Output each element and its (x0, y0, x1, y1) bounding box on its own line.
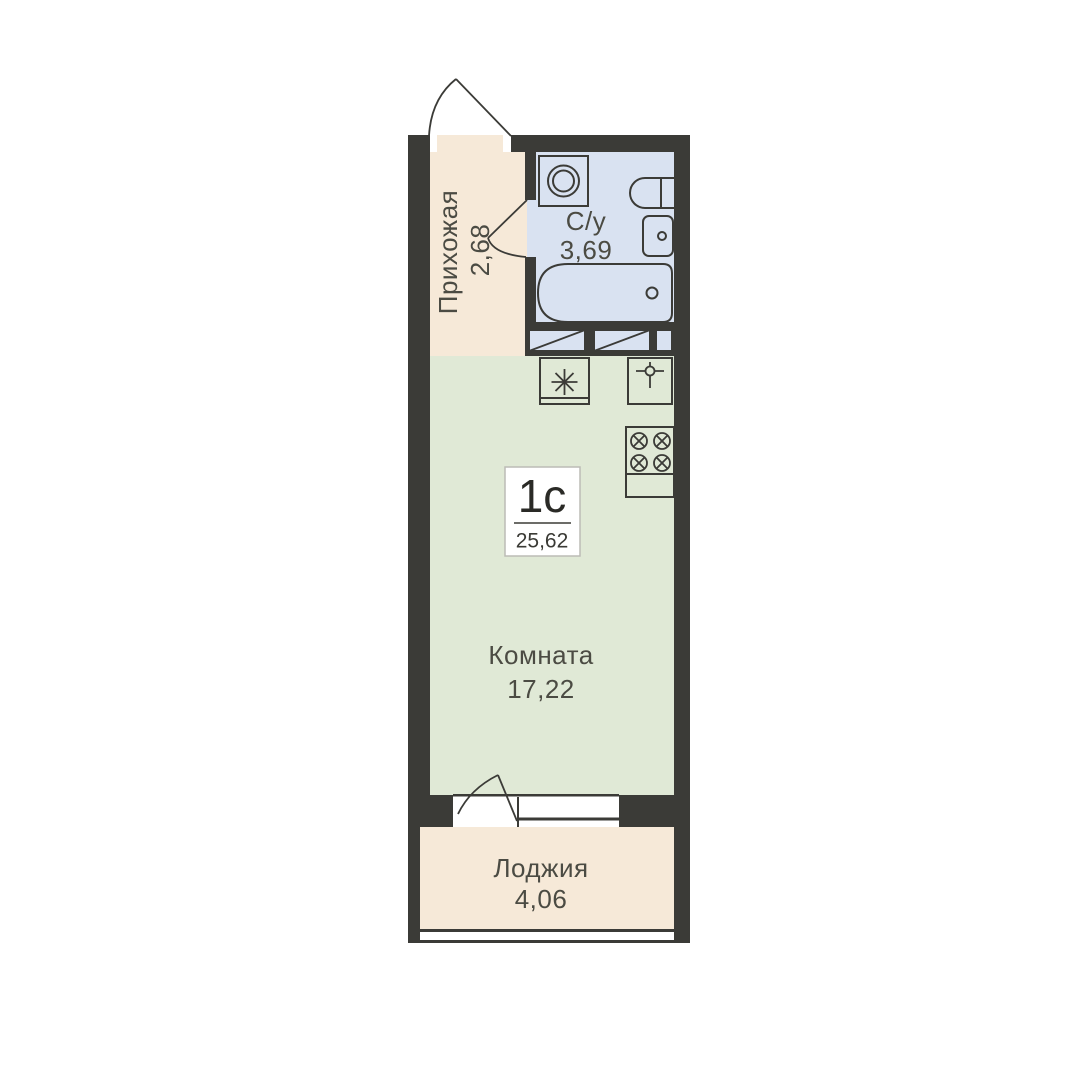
hallway-area-label: 2,68 (465, 224, 495, 277)
window (518, 797, 619, 827)
loggia-name-label: Лоджия (493, 853, 588, 883)
floor-plan: 1с 25,62 Прихожая 2,68 С/у 3,69 Комната … (0, 0, 1080, 1080)
unit-total-area-label: 25,62 (516, 530, 569, 553)
hallway-name-label: Прихожая (433, 190, 463, 314)
bathroom-name-label: С/у (566, 206, 607, 236)
room-name-label: Комната (488, 640, 593, 670)
unit-type-label: 1с (518, 470, 567, 522)
room-area-label: 17,22 (507, 674, 575, 704)
room-floor (430, 356, 674, 795)
floorplan-canvas: 1с 25,62 Прихожая 2,68 С/у 3,69 Комната … (0, 0, 1080, 1080)
ventilation-ducts (529, 330, 672, 351)
bathroom-area-label: 3,69 (560, 235, 613, 265)
entrance-door-swing-icon (429, 79, 511, 136)
unit-card: 1с 25,62 (505, 467, 580, 556)
loggia-area-label: 4,06 (515, 884, 568, 914)
